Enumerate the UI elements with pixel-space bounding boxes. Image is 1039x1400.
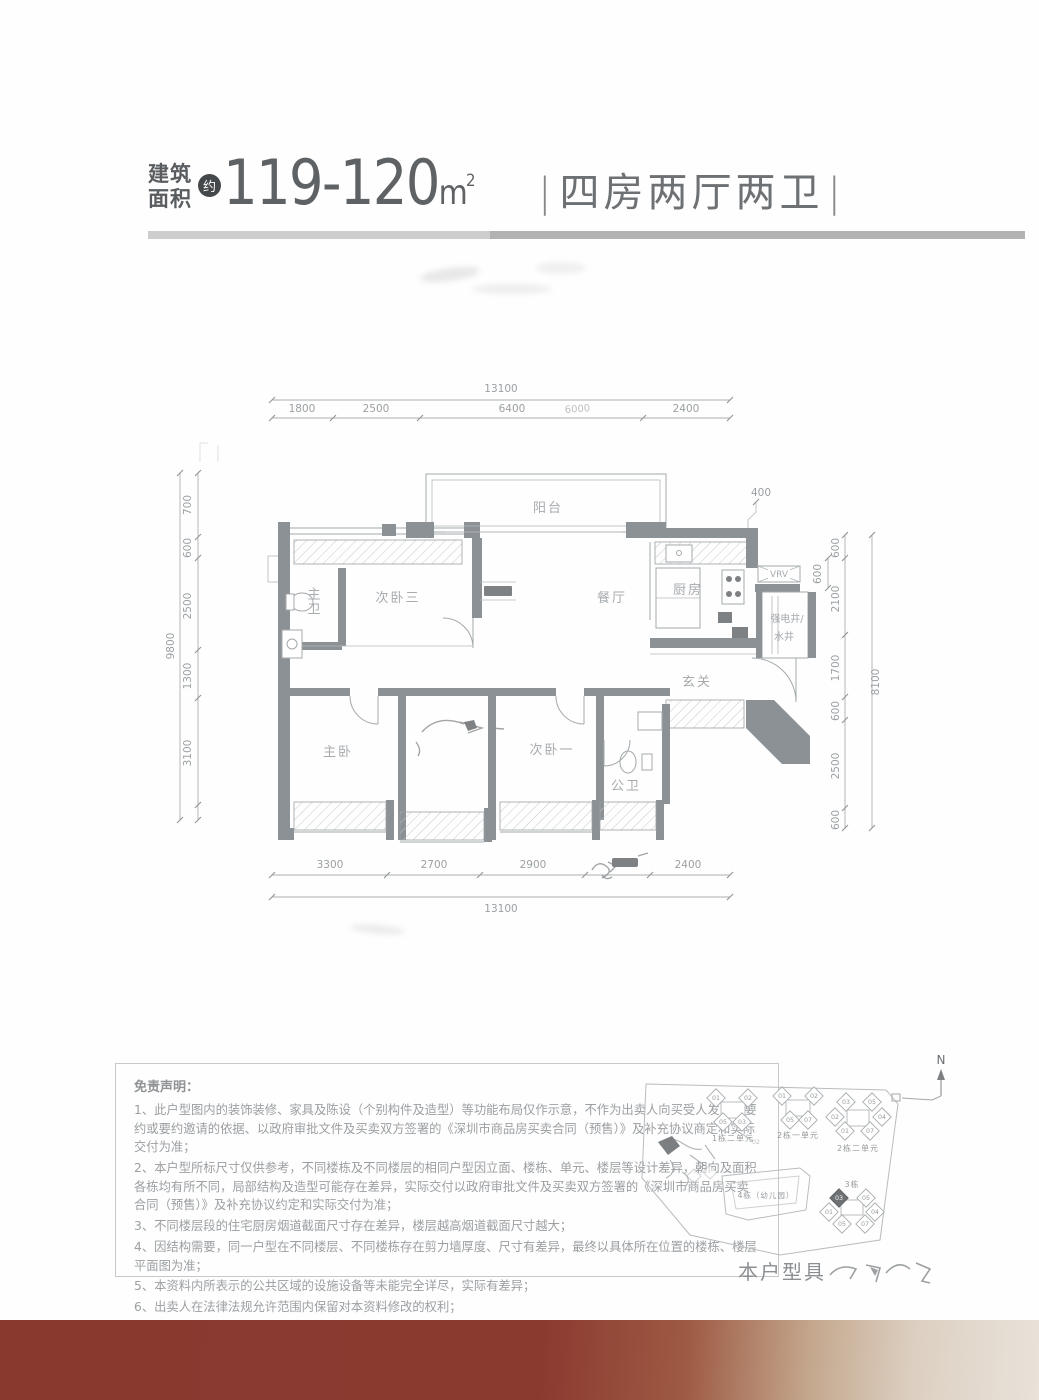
unit-number: 02 xyxy=(831,1114,839,1121)
dim-right-overall: 8100 xyxy=(870,669,882,696)
dim-left-seg: 1300 xyxy=(182,663,194,690)
flue-block xyxy=(718,612,732,623)
dim-chain-bottom: 3300 2700 2900 2400 13100 xyxy=(269,853,733,915)
walls: VRV xyxy=(200,443,816,842)
flue-block xyxy=(732,627,748,639)
siteplan-caption-text: 本户型具 xyxy=(738,1256,826,1285)
bedroom1-door-arc xyxy=(556,696,584,724)
room-label-shaft2: 水井 xyxy=(774,630,794,643)
dim-top-seg: 6400 xyxy=(499,403,526,415)
unit-number: 07 xyxy=(866,1128,874,1135)
room-label-bedroom1: 次卧一 xyxy=(529,742,574,758)
bay-window-hatch xyxy=(500,802,592,830)
stove-icon xyxy=(722,570,744,604)
area-label: 建筑 面积 xyxy=(148,162,192,212)
separator-left: | xyxy=(538,170,555,216)
unit-number: 04 xyxy=(878,1114,886,1121)
area-value: 119-120m2 xyxy=(223,152,474,214)
dim-kitchen-400: 400 xyxy=(751,487,771,499)
dim-top-seg: 1800 xyxy=(289,403,316,415)
north-label: N xyxy=(937,1053,946,1067)
bay-window-hatch xyxy=(400,812,484,840)
bedroom3-door-arc xyxy=(443,618,473,648)
area-label-line2: 面积 xyxy=(148,187,192,212)
guest-bath-fixtures xyxy=(604,712,662,773)
dim-ticks xyxy=(269,872,733,900)
room-label-master-bedroom: 主卧 xyxy=(323,745,353,760)
dim-left-seg: 600 xyxy=(182,538,194,558)
layout-title: |四房两厅两卫| xyxy=(534,160,849,218)
room-label-master-bath: 主卫 xyxy=(305,587,321,617)
room-label-shaft1: 强电井/ xyxy=(770,612,804,625)
unit-number: 07 xyxy=(861,1221,869,1228)
vrv-unit: VRV xyxy=(758,566,800,582)
area-unit-sup: 2 xyxy=(466,171,474,191)
dim-right-seg: 600 xyxy=(830,701,842,721)
vrv-label: VRV xyxy=(770,570,789,580)
page: 建筑 面积 约 119-120m2 |四房两厅两卫| xyxy=(0,0,1039,1400)
utility-shaft xyxy=(756,592,816,658)
building4-label: 4栋（幼儿园） xyxy=(738,1190,795,1200)
cluster-2d2: 03 05 02 04 01 07 2栋二单元 xyxy=(826,1093,891,1153)
area-value-wrap: 119-120m2 xyxy=(223,150,508,214)
room-label-balcony: 阳台 xyxy=(533,501,563,516)
dim-bottom-overall: 13100 xyxy=(484,903,517,915)
unit-number: 07 xyxy=(804,1117,812,1124)
dim-bottom-seg: 2700 xyxy=(421,859,448,871)
disclaimer-item: 5、本资料内所表示的公共区域的设施设备等未能完全详尽，实际有差异； xyxy=(134,1277,760,1296)
unit-number: 05 xyxy=(868,1099,876,1106)
entry-wall xyxy=(746,700,810,764)
dim-left-seg: 700 xyxy=(182,495,194,515)
cluster-label: 2栋一单元 xyxy=(777,1130,819,1140)
dim-left-seg: 3100 xyxy=(182,740,194,767)
foyer-hatch xyxy=(666,700,744,728)
dim-bottom-seg: 2900 xyxy=(520,859,547,871)
room-label-kitchen: 厨房 xyxy=(673,582,703,598)
stray-unit-label: 02 xyxy=(752,1139,760,1146)
siteplan-caption: 本户型具 xyxy=(738,1256,946,1285)
dim-top-artifact: 6000 xyxy=(564,403,590,416)
unit-number: 01 xyxy=(825,1209,833,1216)
dim-right-seg: 2500 xyxy=(830,753,842,780)
master-bedroom-door-arc xyxy=(350,696,378,724)
sink-icon xyxy=(638,712,662,730)
building4: 4栋（幼儿园） xyxy=(722,1168,810,1220)
dim-left-overall: 9800 xyxy=(165,633,177,660)
unit-number: 05 xyxy=(719,1119,727,1126)
bay-window-hatch xyxy=(294,802,386,830)
unit-number: 04 xyxy=(871,1209,879,1216)
cluster-2d1: 01 02 05 07 2栋一单元 xyxy=(773,1087,823,1140)
dim-top-seg: 2500 xyxy=(363,403,390,415)
dim-top-seg: 2400 xyxy=(673,403,700,415)
dim-kitchen-top: 400 xyxy=(748,487,771,530)
dim-bottom-seg: 3300 xyxy=(317,859,344,871)
unit-number: 02 xyxy=(810,1093,818,1100)
unit-number: 02 xyxy=(744,1095,752,1102)
approx-badge: 约 xyxy=(198,174,221,197)
sink-icon xyxy=(282,630,302,658)
unit-number: 05 xyxy=(862,1195,870,1202)
area-label-line1: 建筑 xyxy=(148,162,192,187)
unit-number: 01 xyxy=(841,1128,849,1135)
cluster-1d2: 01 02 05 03 1栋二单元 xyxy=(707,1089,757,1143)
dim-right-seg: 600 xyxy=(830,810,842,830)
cluster-scribble xyxy=(658,1136,717,1186)
unit-number: 03 xyxy=(842,1099,850,1106)
unit-number: 05 xyxy=(786,1117,794,1124)
dim-ticks xyxy=(177,470,201,823)
dim-right-seg: 2100 xyxy=(830,586,842,613)
north-arrow: N xyxy=(892,1053,945,1101)
room-label-bedroom3: 次卧三 xyxy=(375,590,420,606)
toilet-icon xyxy=(620,751,636,773)
dim-chain-top: 13100 1800 2500 6400 6000 2400 xyxy=(269,383,733,421)
smudge-artifact xyxy=(536,262,586,274)
cluster-3d: 3栋 03 05 01 04 05 07 xyxy=(820,1179,884,1233)
siteplan-map: N 01 02 05 03 1栋二单元 02 01 02 05 07 2栋一单元 xyxy=(630,1050,990,1270)
separator-right: | xyxy=(828,170,845,216)
header-divider xyxy=(148,231,1025,239)
dim-right-inner: 600 xyxy=(812,564,824,584)
dim-chain-right: 600 600 2100 1700 600 2500 600 8100 xyxy=(812,532,882,831)
disclaimer-item: 6、出卖人在法律法规允许范围内保留对本资料修改的权利； xyxy=(134,1298,760,1317)
room-label-foyer: 玄关 xyxy=(682,675,712,690)
smudge-artifact xyxy=(419,264,480,285)
layout-title-text: 四房两厅两卫 xyxy=(560,170,824,216)
floorplan-drawing: 13100 1800 2500 6400 6000 2400 9800 700 … xyxy=(160,370,900,950)
dim-left-seg: 2500 xyxy=(182,593,194,620)
dim-top-overall: 13100 xyxy=(484,383,517,395)
bottom-accent-band xyxy=(0,1320,1039,1400)
area-unit: m xyxy=(439,173,466,213)
dining-table-icon xyxy=(480,582,516,600)
unit-number: 03 xyxy=(738,1119,746,1126)
header: 建筑 面积 约 119-120m2 |四房两厅两卫| xyxy=(148,150,849,218)
kitchen-sink-icon xyxy=(666,545,692,562)
entry-door-arc xyxy=(752,658,796,702)
cluster-label: 2栋二单元 xyxy=(837,1143,879,1153)
room-label-guest-bath: 公卫 xyxy=(611,779,641,794)
unit-number: 01 xyxy=(712,1095,720,1102)
dim-right-seg: 1700 xyxy=(830,655,842,682)
dim-bottom-seg: 2400 xyxy=(675,859,702,871)
unit-number: 01 xyxy=(778,1093,786,1100)
unit-number: 05 xyxy=(838,1221,846,1228)
room-label-dining: 餐厅 xyxy=(597,590,627,606)
smudge-artifact xyxy=(472,284,552,294)
cluster-label: 3栋 xyxy=(844,1179,859,1189)
caption-scribble xyxy=(826,1257,946,1285)
bay-window-hatch xyxy=(294,540,462,564)
dim-right-seg: 600 xyxy=(830,538,842,558)
unit-number: 03 xyxy=(835,1195,843,1202)
bay-window-hatch xyxy=(600,802,656,830)
dim-chain-left: 9800 700 600 2500 1300 3100 xyxy=(165,470,201,823)
